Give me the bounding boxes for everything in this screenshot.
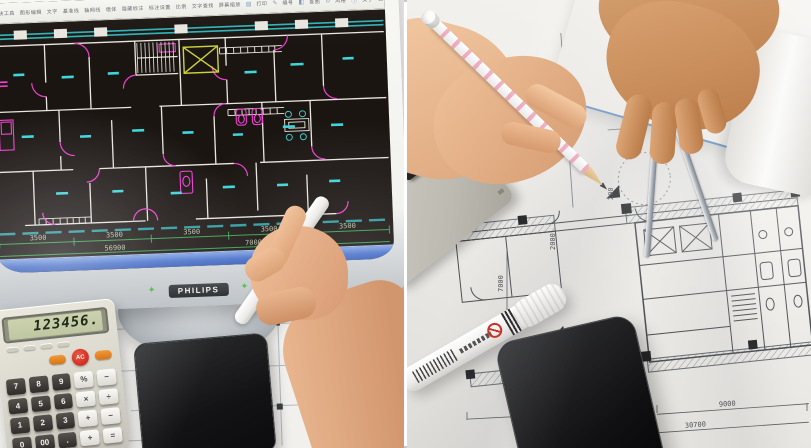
green-sparkle-icon: ✦ <box>240 281 248 292</box>
menu-item: 墙体 <box>106 5 117 12</box>
orange-key <box>49 354 67 365</box>
function-key <box>23 345 35 351</box>
philips-logo: PHILIPS <box>169 283 229 298</box>
info-icon: ⓘ <box>351 0 357 4</box>
function-key <box>57 341 69 347</box>
menu-item: 查图 <box>309 0 320 5</box>
calc-key: − <box>96 368 116 385</box>
orange-key <box>94 350 112 361</box>
cad-dim: 3500 <box>183 227 200 237</box>
menu-item: 关于 <box>362 0 373 3</box>
calculator: 123456. AC 7 8 9 % − 4 5 6 <box>0 298 130 448</box>
menu-item: 标注设置 <box>149 3 171 11</box>
calc-key: × <box>76 390 96 407</box>
cad-dim: 3500 <box>106 230 123 240</box>
bp-dim: 9000 <box>719 400 736 409</box>
calculator-keypad: 7 8 9 % − 4 5 6 × ÷ 1 2 3 + − 0 00 . + = <box>6 368 123 448</box>
cad-dim: 3500 <box>339 221 356 231</box>
left-photo-cad-monitor: 图块工具 图形编辑 文字 基准线 轴网线 墙体 隐藏标注 标注设置 比例 文字查… <box>0 0 404 448</box>
calc-key: 4 <box>8 397 28 414</box>
cad-screen: 图块工具 图形编辑 文字 基准线 轴网线 墙体 隐藏标注 标注设置 比例 文字查… <box>0 0 394 274</box>
menu-item: 编号 <box>282 0 293 6</box>
bp-dim: 30700 <box>685 420 707 429</box>
calc-key: 7 <box>6 378 26 395</box>
calc-key: − <box>101 407 121 424</box>
right-hand-finger <box>649 101 678 165</box>
menu-item: 轴网线 <box>84 6 101 14</box>
function-key <box>40 343 52 349</box>
menu-item: 比例 <box>176 3 187 10</box>
green-sparkle-icon: ✦ <box>148 285 156 296</box>
calc-key: 1 <box>10 417 30 434</box>
calculator-display-frame: 123456. <box>1 307 109 344</box>
calculator-display: 123456. <box>8 310 104 340</box>
calc-key: 0 <box>12 436 32 448</box>
bp-dim-side: 2000 <box>549 233 557 250</box>
calc-key: 9 <box>51 373 71 390</box>
menu-item: 基准线 <box>63 7 80 15</box>
cad-dim: 3500 <box>29 233 46 243</box>
menu-item: 图形编辑 <box>20 8 42 16</box>
calc-key: = <box>103 426 123 443</box>
photo-collage: 图块工具 图形编辑 文字 基准线 轴网线 墙体 隐藏标注 标注设置 比例 文字查… <box>0 0 811 448</box>
smartphone-on-desk <box>133 332 277 448</box>
menu-item: 屏幕缩放 <box>219 1 241 9</box>
cad-dim-total: 56900 <box>104 243 125 253</box>
menu-item: 文字查找 <box>192 2 214 10</box>
cad-floorplan: 3500 3500 3500 3500 3500 56900 7000 <box>0 10 394 260</box>
menu-item: 文字 <box>47 8 58 15</box>
menu-item: 隐藏标注 <box>122 4 144 12</box>
right-photo-blueprint-drafting: 2400 9000 30700 7000 2000 200 0 0 1 2 <box>407 0 811 448</box>
menu-item: 打印 <box>256 0 267 7</box>
calc-key: 6 <box>53 392 73 409</box>
calc-key: . <box>57 431 77 448</box>
bp-dim-side: 200 <box>607 187 615 200</box>
ac-button: AC <box>71 348 90 367</box>
calc-key: 5 <box>30 395 50 412</box>
calc-key: 8 <box>28 375 48 392</box>
calc-key: + <box>80 429 100 446</box>
layout-icon: ◧ <box>298 0 304 5</box>
printer-icon: ▤ <box>246 0 252 7</box>
calc-key: 00 <box>35 434 55 448</box>
menu-item: 图块工具 <box>0 9 15 17</box>
refresh-icon: ↻ <box>325 0 330 4</box>
calc-key: 2 <box>33 414 53 431</box>
menu-item: 风格 <box>335 0 346 4</box>
menu-item: 资料 <box>378 0 385 2</box>
function-key <box>6 346 18 352</box>
pencil-icon: ✎ <box>272 0 277 6</box>
calc-key: ÷ <box>99 388 119 405</box>
calculator-accent-row: AC <box>48 346 112 369</box>
calc-key: + <box>78 409 98 426</box>
calc-key: 3 <box>55 412 75 429</box>
bp-dim-side: 7000 <box>497 275 505 292</box>
calc-key: % <box>74 371 94 388</box>
